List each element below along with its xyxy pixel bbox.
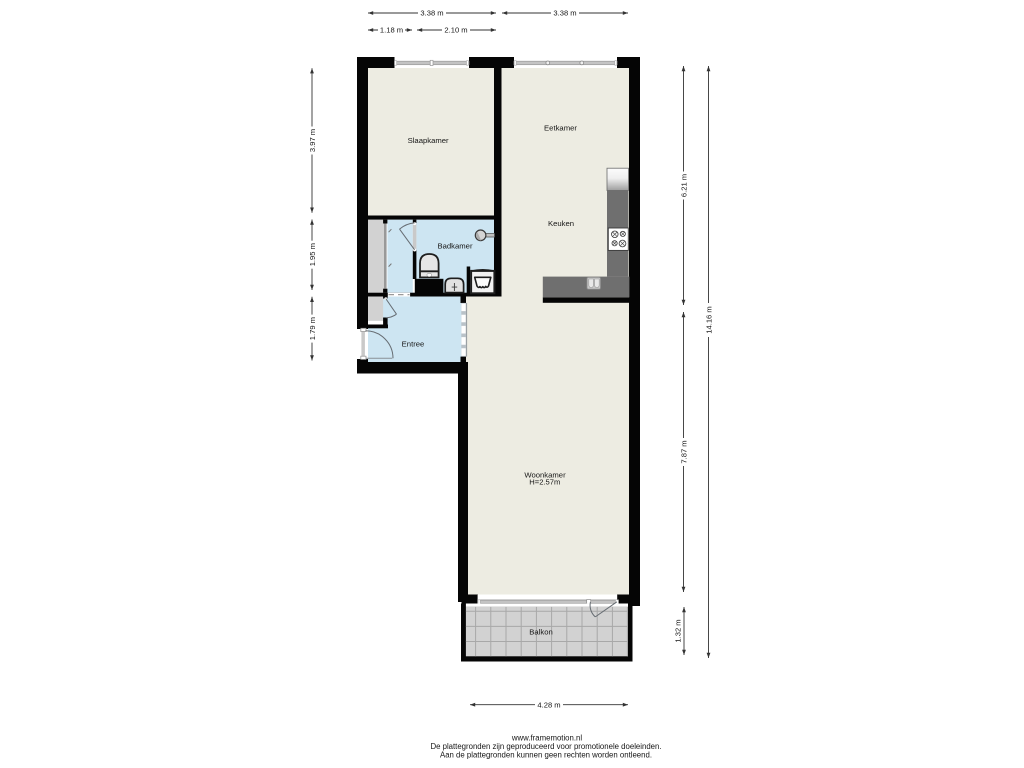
svg-text:Aan de plattegronden kunnen ge: Aan de plattegronden kunnen geen rechten… (440, 751, 652, 760)
svg-text:De plattegronden zijn geproduc: De plattegronden zijn geproduceerd voor … (430, 742, 661, 751)
svg-text:1.79 m: 1.79 m (308, 317, 317, 340)
svg-text:3.38 m: 3.38 m (553, 9, 576, 18)
svg-text:3.97 m: 3.97 m (308, 129, 317, 152)
svg-text:Slaapkamer: Slaapkamer (408, 136, 449, 145)
svg-text:3.38 m: 3.38 m (420, 9, 443, 18)
svg-text:H=2.57m: H=2.57m (529, 477, 560, 486)
svg-text:1.32 m: 1.32 m (674, 619, 683, 642)
svg-text:4.28 m: 4.28 m (537, 700, 560, 709)
svg-text:Badkamer: Badkamer (437, 242, 472, 251)
svg-text:1.95 m: 1.95 m (308, 243, 317, 266)
svg-text:2.10 m: 2.10 m (444, 26, 467, 35)
svg-text:1.18 m: 1.18 m (380, 26, 403, 35)
svg-text:6.21 m: 6.21 m (680, 174, 689, 197)
svg-text:Eetkamer: Eetkamer (544, 123, 577, 132)
svg-text:14.16 m: 14.16 m (705, 306, 714, 333)
svg-text:Keuken: Keuken (548, 219, 574, 228)
svg-text:7.87 m: 7.87 m (680, 440, 689, 463)
svg-text:Balkon: Balkon (529, 627, 553, 636)
svg-text:Entree: Entree (402, 339, 425, 348)
